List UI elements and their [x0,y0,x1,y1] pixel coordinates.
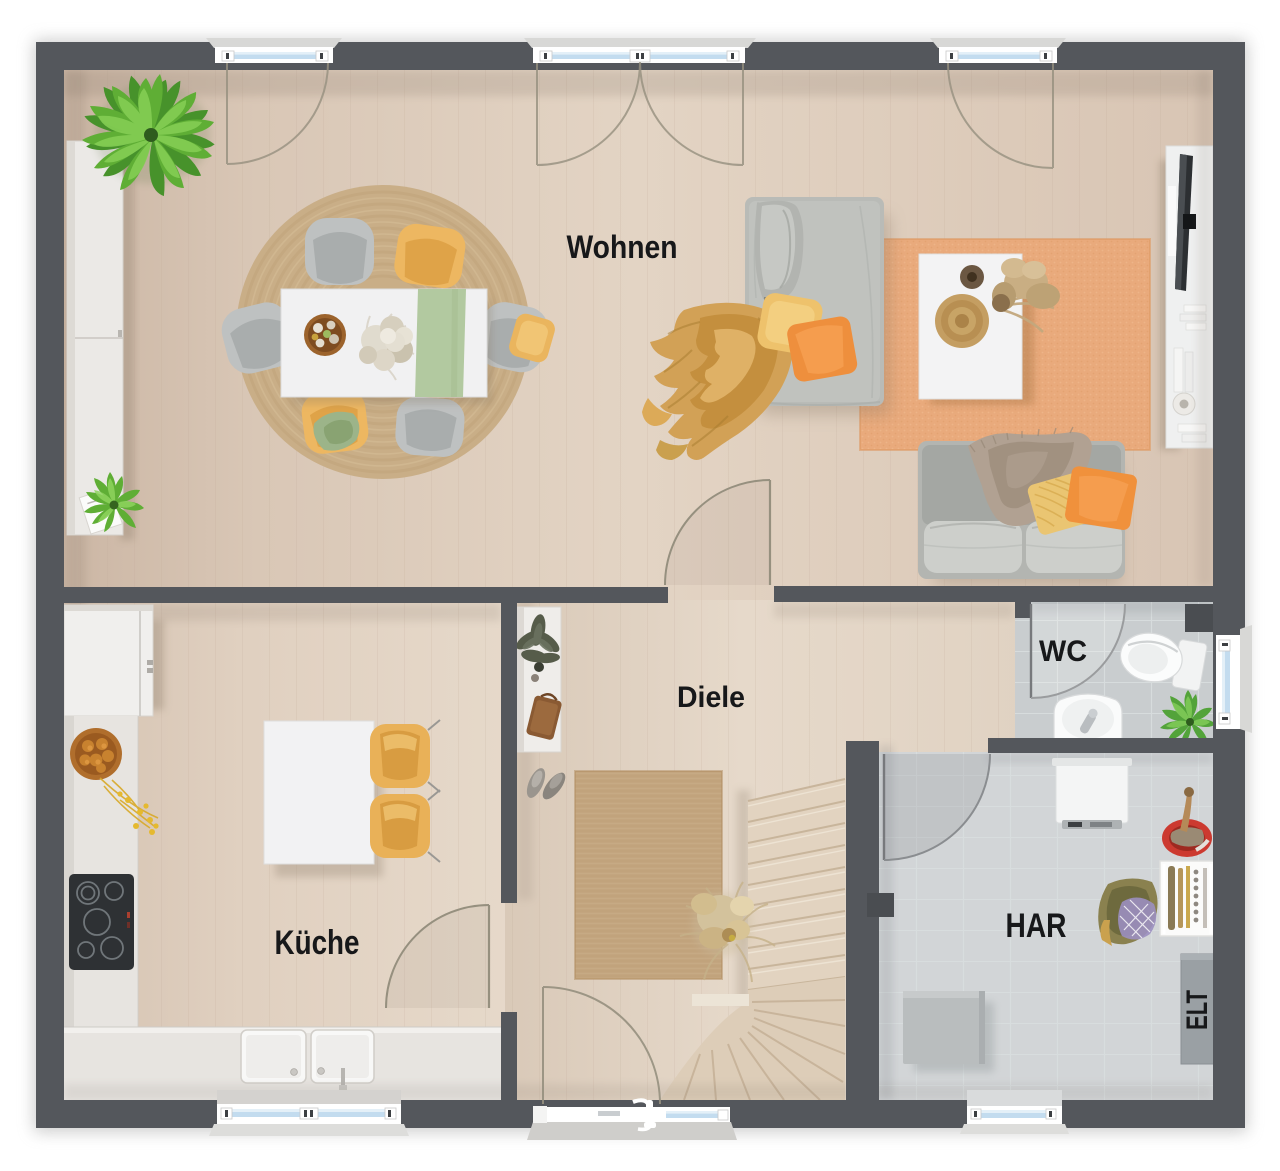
svg-text:Küche: Küche [275,924,360,962]
svg-text:HAR: HAR [1006,907,1067,945]
svg-text:Wohnen: Wohnen [567,229,678,265]
svg-text:WC: WC [1039,635,1087,668]
svg-text:ELT: ELT [1181,990,1214,1030]
svg-text:Diele: Diele [677,681,745,714]
